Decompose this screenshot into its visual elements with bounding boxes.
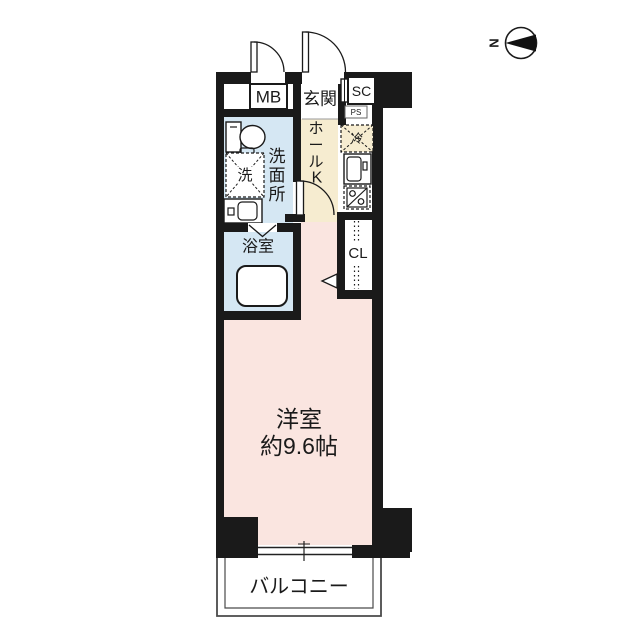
bottom-left-block [216,517,258,558]
bathroom-label: 浴室 [242,238,274,256]
washer-label: 洗 [237,167,252,184]
washroom-hall-wall [293,84,301,182]
meter-box-label: MB [256,88,282,107]
hall-room-door-leaf [297,181,304,215]
hall-label: ホール [308,120,323,171]
bathroom-top-wall-left [216,223,248,232]
shoe-closet-label: SC [352,83,371,99]
meter-box: MB [250,42,287,109]
washroom-label: 洗面所 [269,147,286,204]
compass-north-label: N [487,38,502,47]
main-room-name-label: 洋室 [276,406,322,432]
balcony: バルコニー [217,556,381,616]
main-room-size-label: 約9.6帖 [260,433,338,459]
refrigerator-label: 冷 [351,132,363,146]
bathroom-bottom-wall [216,311,301,320]
closet-bottom-wall [337,290,381,299]
closet-label: CL [348,245,367,262]
shoe-closet-area: SC PS [341,77,375,118]
meter-box-door-swing-arc [254,42,284,72]
top-wall-mid [285,72,302,84]
entrance-label: 玄関 [303,90,337,109]
bathroom-right-wall [293,223,301,320]
meter-box-door-leaf [251,42,257,72]
pillar-bottom-right [372,508,412,552]
balcony-label: バルコニー [249,576,349,598]
closet-left-wall [337,212,345,299]
bathtub-icon [237,266,287,306]
pillar-top-right [378,72,412,108]
pipe-space-label: PS [351,108,362,117]
wall-under-mb [216,109,301,117]
right-wall [372,72,383,552]
toilet-bowl [240,126,265,149]
entrance-door-leaf [303,32,309,72]
entrance-door-swing-arc [306,32,346,72]
north-indicator: N [487,28,537,59]
floor-plan: バルコニー 玄関 MB [0,0,640,640]
